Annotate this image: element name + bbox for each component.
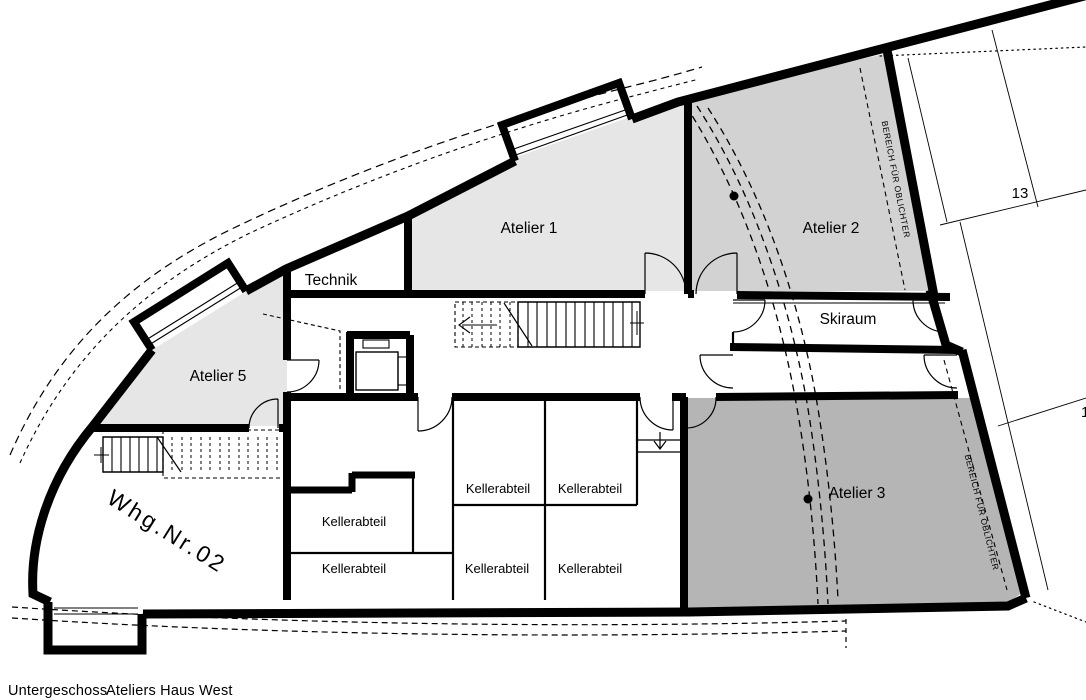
label-kellerabteil-1: Kellerabteil: [322, 514, 386, 529]
whg-stair-solid-treads: [112, 437, 157, 472]
label-atelier-1: Atelier 1: [501, 220, 558, 237]
room-fill-atelier-3: [688, 398, 1023, 608]
floor-plan-sheet: Atelier 1 Atelier 2 Atelier 3 Atelier 5 …: [0, 0, 1086, 700]
label-parcel-13: 13: [1012, 185, 1029, 202]
label-kellerabteil-6: Kellerabteil: [558, 561, 622, 576]
door-cellar-hall: [418, 397, 452, 431]
parcel-line-2: [992, 30, 1038, 207]
door-atelier-5-corridor: [287, 360, 319, 392]
stair-solid-treads: [528, 302, 632, 347]
door-skiraum-left: [733, 300, 765, 332]
stair-direction-arrow: [459, 317, 497, 333]
room-fill-atelier-5: [92, 270, 287, 426]
label-technik: Technik: [305, 272, 358, 289]
lightwell-bay-bottom-frame: [48, 602, 142, 650]
elevator-car: [356, 352, 398, 390]
cellar-steps: [637, 432, 684, 452]
dot-atelier-2: [730, 192, 739, 201]
label-kellerabteil-3: Kellerabteil: [466, 481, 530, 496]
site-dotted-bottom-right: [1034, 602, 1086, 622]
stair-solid-outline: [518, 302, 640, 347]
site-dashed-bottom-2: [12, 618, 846, 635]
label-atelier-3: Atelier 3: [829, 485, 886, 502]
staircase-whg: [94, 430, 285, 478]
label-whg-nr-02: Whg.Nr.02: [103, 484, 232, 578]
dot-atelier-3: [804, 495, 813, 504]
cellar-l-wall-thick: [290, 473, 415, 492]
label-kellerabteil-5: Kellerabteil: [465, 561, 529, 576]
label-skiraum: Skiraum: [820, 311, 877, 328]
whg-stair-dashed-treads: [172, 437, 277, 472]
elevator-counterweight: [363, 340, 389, 348]
caption-building: Ateliers Haus West: [106, 683, 233, 699]
whg-stair-break-line: [157, 437, 181, 472]
staircase-corridor: [455, 302, 644, 347]
door-band-right: [924, 355, 957, 388]
elevator: [356, 340, 409, 390]
site-dotted-top-right: [880, 47, 1086, 56]
caption-floor: Untergeschoss: [8, 683, 107, 699]
label-parcel-partial: 1: [1081, 404, 1086, 421]
parcel-line-5: [998, 398, 1086, 426]
label-kellerabteil-4: Kellerabteil: [558, 481, 622, 496]
label-atelier-2: Atelier 2: [803, 220, 860, 237]
door-band-left: [700, 355, 733, 388]
door-cellar-stair: [640, 397, 673, 430]
whg-stair-datum-tick: [94, 447, 109, 463]
label-kellerabteil-2: Kellerabteil: [322, 561, 386, 576]
label-atelier-5: Atelier 5: [190, 368, 247, 385]
caption: Untergeschoss Ateliers Haus West: [8, 683, 233, 699]
floor-plan-drawing: Atelier 1 Atelier 2 Atelier 3 Atelier 5 …: [0, 0, 1086, 700]
